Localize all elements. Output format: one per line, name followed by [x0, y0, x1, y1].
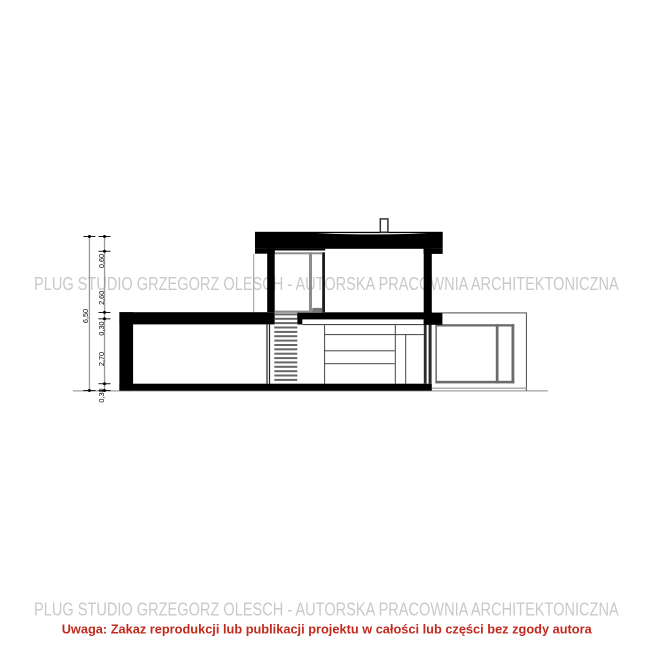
svg-text:0,30: 0,30 [97, 388, 106, 402]
svg-text:6,50: 6,50 [81, 309, 90, 323]
svg-text:PLUG STUDIO GRZEGORZ OLESCH -: PLUG STUDIO GRZEGORZ OLESCH - AUTORSKA P… [34, 599, 619, 619]
svg-text:PLUG STUDIO GRZEGORZ OLESCH -: PLUG STUDIO GRZEGORZ OLESCH - AUTORSKA P… [34, 274, 619, 294]
svg-text:0,30: 0,30 [97, 321, 106, 335]
svg-text:2,60: 2,60 [97, 291, 106, 305]
svg-text:0,60: 0,60 [97, 254, 106, 268]
svg-text:Uwaga: Zakaz reprodukcji lub p: Uwaga: Zakaz reprodukcji lub publikacji … [62, 621, 593, 636]
svg-text:2,70: 2,70 [97, 352, 106, 366]
